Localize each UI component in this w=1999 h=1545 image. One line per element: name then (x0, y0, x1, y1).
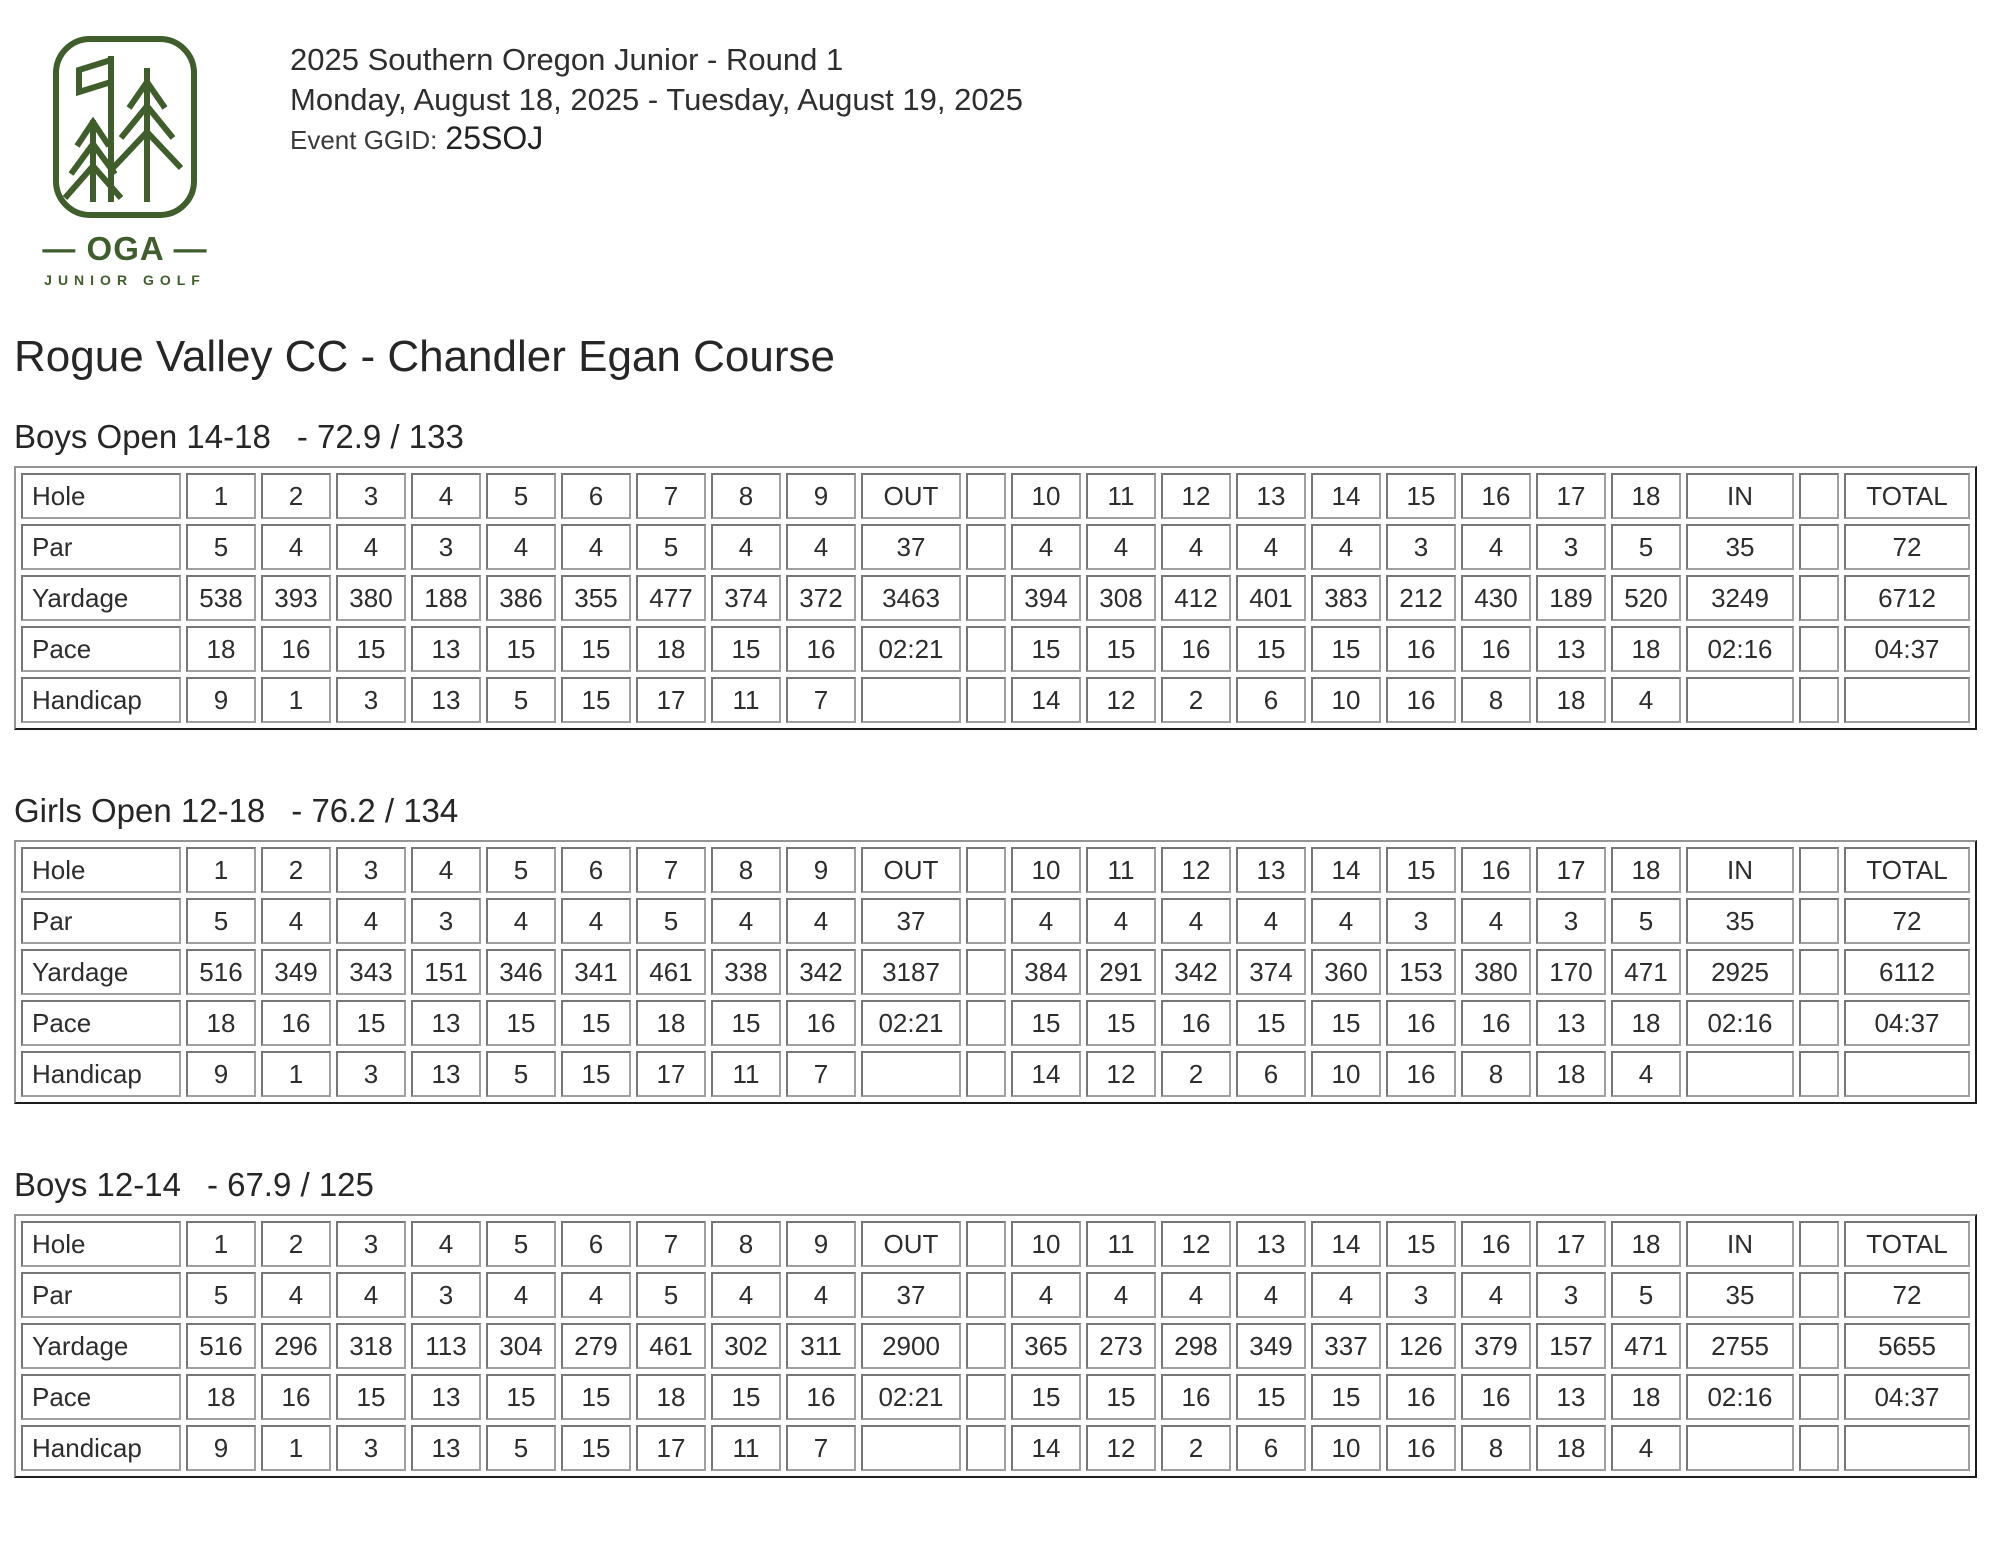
score-cell: 7 (786, 1051, 856, 1097)
score-cell: 7 (636, 473, 706, 519)
score-cell: 5 (186, 1272, 256, 1318)
score-cell: 3187 (861, 949, 961, 995)
score-cell: 16 (1461, 626, 1531, 672)
score-cell: IN (1686, 473, 1794, 519)
spacer-cell (1799, 1000, 1839, 1046)
score-cell: 4 (786, 1272, 856, 1318)
spacer-cell (1799, 524, 1839, 570)
score-cell (1844, 1051, 1970, 1097)
score-cell: 4 (1236, 524, 1306, 570)
score-cell: 18 (1611, 1374, 1681, 1420)
spacer-cell (966, 473, 1006, 519)
score-cell: 308 (1086, 575, 1156, 621)
score-cell: 189 (1536, 575, 1606, 621)
row-label-cell: Hole (21, 473, 181, 519)
spacer-cell (1799, 898, 1839, 944)
score-cell: 37 (861, 898, 961, 944)
score-cell: 349 (1236, 1323, 1306, 1369)
score-cell: 12 (1086, 1051, 1156, 1097)
score-cell: 365 (1011, 1323, 1081, 1369)
score-cell: 6 (1236, 677, 1306, 723)
score-cell: 394 (1011, 575, 1081, 621)
score-cell: 13 (411, 1000, 481, 1046)
tee-rating-slope: - 76.2 / 134 (291, 792, 458, 829)
score-cell: 3 (336, 677, 406, 723)
score-cell: 1 (186, 1221, 256, 1267)
score-cell: 18 (186, 1374, 256, 1420)
score-cell: 2925 (1686, 949, 1794, 995)
score-cell: 4 (1311, 1272, 1381, 1318)
spacer-cell (966, 1425, 1006, 1471)
spacer-cell (1799, 1272, 1839, 1318)
tee-name: Boys 12-14 (14, 1166, 181, 1203)
score-cell: 461 (636, 949, 706, 995)
score-cell: 5655 (1844, 1323, 1970, 1369)
score-cell: 380 (1461, 949, 1531, 995)
score-cell: 4 (261, 1272, 331, 1318)
score-cell: 9 (786, 847, 856, 893)
row-label-cell: Yardage (21, 575, 181, 621)
score-cell: 15 (336, 1000, 406, 1046)
score-cell: 520 (1611, 575, 1681, 621)
score-cell: 3 (1386, 1272, 1456, 1318)
score-cell: 318 (336, 1323, 406, 1369)
score-cell: 374 (711, 575, 781, 621)
spacer-cell (966, 524, 1006, 570)
score-cell: 4 (411, 1221, 481, 1267)
spacer-cell (966, 1374, 1006, 1420)
score-cell: 15 (711, 626, 781, 672)
score-cell: 7 (786, 1425, 856, 1471)
score-cell: 72 (1844, 898, 1970, 944)
score-cell: 3 (1536, 524, 1606, 570)
row-label-cell: Pace (21, 1000, 181, 1046)
score-cell: 18 (636, 1374, 706, 1420)
score-cell: 13 (1236, 473, 1306, 519)
score-cell: 3 (411, 524, 481, 570)
spacer-cell (1799, 1425, 1839, 1471)
spacer-cell (1799, 1221, 1839, 1267)
score-cell: 346 (486, 949, 556, 995)
score-cell: 35 (1686, 898, 1794, 944)
score-cell: 4 (486, 524, 556, 570)
score-cell: 4 (711, 524, 781, 570)
spacer-cell (966, 1323, 1006, 1369)
score-cell: 12 (1161, 473, 1231, 519)
score-cell: 9 (186, 1051, 256, 1097)
score-cell: 4 (486, 1272, 556, 1318)
score-cell: 4 (1311, 898, 1381, 944)
score-cell: 13 (411, 1374, 481, 1420)
score-cell: 16 (1386, 1425, 1456, 1471)
score-cell: 04:37 (1844, 626, 1970, 672)
score-cell: 14 (1011, 1425, 1081, 1471)
score-cell: 3 (336, 1425, 406, 1471)
score-cell: 16 (1386, 626, 1456, 672)
spacer-cell (966, 677, 1006, 723)
oga-logo: — OGA — JUNIOR GOLF (30, 34, 220, 288)
score-cell: 4 (1086, 1272, 1156, 1318)
score-cell: 4 (1161, 524, 1231, 570)
score-cell: 11 (711, 1425, 781, 1471)
score-cell: 04:37 (1844, 1374, 1970, 1420)
score-cell: 72 (1844, 1272, 1970, 1318)
score-cell: 5 (1611, 898, 1681, 944)
score-cell: 6 (1236, 1425, 1306, 1471)
score-cell: 430 (1461, 575, 1531, 621)
spacer-cell (966, 1000, 1006, 1046)
scorecard-row: Handicap913135151711714122610168184 (21, 1425, 1970, 1471)
score-cell: 342 (786, 949, 856, 995)
score-cell: 386 (486, 575, 556, 621)
score-cell: 342 (1161, 949, 1231, 995)
score-cell: 15 (1011, 1374, 1081, 1420)
event-ggid: Event GGID:25SOJ (290, 120, 1023, 158)
score-cell: 16 (786, 1000, 856, 1046)
score-cell: 4 (711, 898, 781, 944)
score-cell: 516 (186, 949, 256, 995)
score-cell: 4 (1611, 1425, 1681, 1471)
score-cell: 15 (336, 626, 406, 672)
score-cell: 5 (486, 1221, 556, 1267)
course-title: Rogue Valley CC - Chandler Egan Course (14, 332, 1985, 382)
score-cell: 471 (1611, 949, 1681, 995)
score-cell: 02:21 (861, 1374, 961, 1420)
score-cell: 5 (636, 1272, 706, 1318)
score-cell: 13 (411, 626, 481, 672)
row-label-cell: Par (21, 898, 181, 944)
scorecard-row: Par544344544374444434353572 (21, 524, 1970, 570)
spacer-cell (1799, 1051, 1839, 1097)
score-cell (861, 677, 961, 723)
score-cell: 13 (1236, 1221, 1306, 1267)
score-cell: 4 (1461, 1272, 1531, 1318)
row-label-cell: Pace (21, 626, 181, 672)
score-cell: 18 (1611, 1000, 1681, 1046)
ggid-value: 25SOJ (445, 120, 543, 156)
score-cell: 7 (636, 847, 706, 893)
score-cell: 1 (186, 473, 256, 519)
score-cell: 02:16 (1686, 1374, 1794, 1420)
score-cell: 18 (186, 626, 256, 672)
score-cell: 16 (1386, 677, 1456, 723)
score-cell: 18 (1611, 1221, 1681, 1267)
score-cell: 3249 (1686, 575, 1794, 621)
tee-name: Boys Open 14-18 (14, 418, 271, 455)
score-cell: 5 (1611, 1272, 1681, 1318)
spacer-cell (1799, 847, 1839, 893)
score-cell: 02:16 (1686, 1000, 1794, 1046)
score-cell: 15 (1011, 626, 1081, 672)
score-cell: 2 (1161, 677, 1231, 723)
score-cell: 2 (261, 847, 331, 893)
scorecard-table: Hole123456789OUT101112131415161718INTOTA… (14, 1214, 1977, 1478)
score-cell: 4 (1611, 1051, 1681, 1097)
score-cell: 279 (561, 1323, 631, 1369)
score-cell: 9 (186, 1425, 256, 1471)
score-cell: 338 (711, 949, 781, 995)
ggid-label: Event GGID: (290, 125, 437, 155)
score-cell: 12 (1161, 847, 1231, 893)
score-cell: 17 (1536, 847, 1606, 893)
score-cell: 5 (486, 1425, 556, 1471)
score-cell: TOTAL (1844, 473, 1970, 519)
score-cell: 15 (711, 1374, 781, 1420)
score-cell: 13 (411, 677, 481, 723)
scorecard-row: Hole123456789OUT101112131415161718INTOTA… (21, 847, 1970, 893)
score-cell: 17 (1536, 473, 1606, 519)
score-cell: 15 (561, 1374, 631, 1420)
score-cell: 18 (1611, 626, 1681, 672)
score-cell: 15 (486, 1374, 556, 1420)
scorecard-table: Hole123456789OUT101112131415161718INTOTA… (14, 466, 1977, 730)
score-cell: 8 (711, 473, 781, 519)
score-cell: 4 (786, 524, 856, 570)
score-cell: 384 (1011, 949, 1081, 995)
score-cell: 13 (411, 1051, 481, 1097)
score-cell: 17 (636, 677, 706, 723)
score-cell: 15 (1236, 1000, 1306, 1046)
score-cell: 16 (261, 1000, 331, 1046)
score-cell: 10 (1011, 473, 1081, 519)
spacer-cell (1799, 626, 1839, 672)
score-cell: 302 (711, 1323, 781, 1369)
score-cell: 12 (1161, 1221, 1231, 1267)
score-cell: 16 (261, 626, 331, 672)
score-cell: 16 (261, 1374, 331, 1420)
score-cell: 15 (1086, 626, 1156, 672)
score-cell: 15 (1236, 1374, 1306, 1420)
score-cell: 1 (261, 1051, 331, 1097)
score-cell: 18 (636, 626, 706, 672)
tee-heading: Boys Open 14-18- 72.9 / 133 (14, 418, 1985, 456)
score-cell: 4 (1161, 1272, 1231, 1318)
score-cell: 9 (786, 1221, 856, 1267)
score-cell: 6 (1236, 1051, 1306, 1097)
score-cell: 3 (1536, 1272, 1606, 1318)
scorecard-row: Yardage516349343151346341461338342318738… (21, 949, 1970, 995)
tee-section: Boys Open 14-18- 72.9 / 133Hole123456789… (14, 418, 1985, 730)
score-cell: 3 (411, 1272, 481, 1318)
spacer-cell (966, 1051, 1006, 1097)
spacer-cell (1799, 473, 1839, 519)
spacer-cell (1799, 1374, 1839, 1420)
score-cell: 7 (636, 1221, 706, 1267)
score-cell: 360 (1311, 949, 1381, 995)
event-dates: Monday, August 18, 2025 - Tuesday, Augus… (290, 80, 1023, 120)
score-cell: 4 (411, 473, 481, 519)
spacer-cell (966, 1221, 1006, 1267)
score-cell: 5 (486, 473, 556, 519)
score-cell: 16 (1461, 1374, 1531, 1420)
score-cell: 12 (1086, 1425, 1156, 1471)
score-cell: 343 (336, 949, 406, 995)
score-cell: 37 (861, 1272, 961, 1318)
score-cell: 4 (1086, 898, 1156, 944)
score-cell: 14 (1311, 847, 1381, 893)
scorecard-row: Yardage516296318113304279461302311290036… (21, 1323, 1970, 1369)
score-cell: 35 (1686, 524, 1794, 570)
score-cell: 349 (261, 949, 331, 995)
score-cell: 4 (261, 524, 331, 570)
score-cell: 18 (1536, 677, 1606, 723)
score-cell: 4 (261, 898, 331, 944)
score-cell (1844, 677, 1970, 723)
score-cell: 9 (786, 473, 856, 519)
score-cell: 113 (411, 1323, 481, 1369)
score-cell: 412 (1161, 575, 1231, 621)
score-cell: 4 (336, 1272, 406, 1318)
score-cell: 15 (1386, 473, 1456, 519)
score-cell: 4 (1611, 677, 1681, 723)
score-cell: 8 (1461, 1425, 1531, 1471)
score-cell: OUT (861, 1221, 961, 1267)
score-cell: 16 (1386, 1000, 1456, 1046)
score-cell: 3 (1536, 898, 1606, 944)
score-cell: 477 (636, 575, 706, 621)
score-cell: 18 (1611, 847, 1681, 893)
score-cell: 5 (486, 847, 556, 893)
score-cell: 16 (1386, 1374, 1456, 1420)
score-cell: 337 (1311, 1323, 1381, 1369)
score-cell: 15 (711, 1000, 781, 1046)
score-cell: 2 (1161, 1051, 1231, 1097)
score-cell: 2900 (861, 1323, 961, 1369)
score-cell: 13 (1536, 1374, 1606, 1420)
row-label-cell: Handicap (21, 1051, 181, 1097)
score-cell: 188 (411, 575, 481, 621)
score-cell: 15 (336, 1374, 406, 1420)
score-cell: OUT (861, 473, 961, 519)
score-cell: 3 (336, 473, 406, 519)
score-cell: 35 (1686, 1272, 1794, 1318)
row-label-cell: Pace (21, 1374, 181, 1420)
score-cell: 4 (1461, 898, 1531, 944)
score-cell: 2 (1161, 1425, 1231, 1471)
score-cell: 18 (1611, 473, 1681, 519)
score-cell: 6 (561, 1221, 631, 1267)
score-cell: 355 (561, 575, 631, 621)
score-cell: 13 (1236, 847, 1306, 893)
scorecard-row: Hole123456789OUT101112131415161718INTOTA… (21, 1221, 1970, 1267)
score-cell: 16 (1161, 1374, 1231, 1420)
score-cell: 291 (1086, 949, 1156, 995)
score-cell (1844, 1425, 1970, 1471)
score-cell: 16 (1161, 626, 1231, 672)
row-label-cell: Par (21, 1272, 181, 1318)
score-cell: 12 (1086, 677, 1156, 723)
score-cell: 304 (486, 1323, 556, 1369)
score-cell: 15 (1311, 1000, 1381, 1046)
scorecard-row: Hole123456789OUT101112131415161718INTOTA… (21, 473, 1970, 519)
score-cell: 15 (486, 626, 556, 672)
spacer-cell (966, 847, 1006, 893)
score-cell: 11 (1086, 847, 1156, 893)
score-cell: 4 (1011, 898, 1081, 944)
score-cell: 16 (786, 1374, 856, 1420)
spacer-cell (966, 949, 1006, 995)
tee-section: Girls Open 12-18- 76.2 / 134Hole12345678… (14, 792, 1985, 1104)
score-cell: 18 (186, 1000, 256, 1046)
score-cell: 15 (1386, 1221, 1456, 1267)
score-cell: 298 (1161, 1323, 1231, 1369)
score-cell: 15 (561, 1000, 631, 1046)
score-cell: 16 (1461, 1221, 1531, 1267)
score-cell: 151 (411, 949, 481, 995)
score-cell: 13 (411, 1425, 481, 1471)
score-cell: 16 (1461, 1000, 1531, 1046)
scorecard-row: Pace18161513151518151602:211515161515161… (21, 1374, 1970, 1420)
score-cell: 10 (1311, 1425, 1381, 1471)
event-header-text: 2025 Southern Oregon Junior - Round 1 Mo… (290, 34, 1023, 158)
score-cell: 13 (1536, 1000, 1606, 1046)
score-cell: 153 (1386, 949, 1456, 995)
score-cell: 8 (1461, 677, 1531, 723)
score-cell: 16 (1461, 847, 1531, 893)
score-cell: 4 (1311, 524, 1381, 570)
oga-pines-flag-icon (49, 34, 201, 222)
score-cell: 10 (1011, 1221, 1081, 1267)
score-cell: 11 (711, 677, 781, 723)
spacer-cell (966, 575, 1006, 621)
tee-heading: Boys 12-14- 67.9 / 125 (14, 1166, 1985, 1204)
score-cell: 72 (1844, 524, 1970, 570)
score-cell: 4 (1011, 524, 1081, 570)
score-cell: 17 (1536, 1221, 1606, 1267)
score-cell (861, 1051, 961, 1097)
score-cell: 14 (1011, 1051, 1081, 1097)
scorecard-row: Yardage538393380188386355477374372346339… (21, 575, 1970, 621)
score-cell: 2755 (1686, 1323, 1794, 1369)
score-cell: 372 (786, 575, 856, 621)
score-cell: 15 (1311, 626, 1381, 672)
score-cell: IN (1686, 847, 1794, 893)
score-cell: 4 (486, 898, 556, 944)
score-cell: 8 (1461, 1051, 1531, 1097)
row-label-cell: Yardage (21, 949, 181, 995)
score-cell: 3 (336, 1051, 406, 1097)
score-cell: 5 (186, 898, 256, 944)
tee-heading: Girls Open 12-18- 76.2 / 134 (14, 792, 1985, 830)
score-cell: 6 (561, 473, 631, 519)
score-cell: 311 (786, 1323, 856, 1369)
score-cell: 1 (261, 1425, 331, 1471)
score-cell: 4 (561, 1272, 631, 1318)
score-cell: 15 (561, 677, 631, 723)
score-cell: 16 (786, 626, 856, 672)
score-cell: 4 (336, 898, 406, 944)
score-cell: IN (1686, 1221, 1794, 1267)
score-cell: 341 (561, 949, 631, 995)
score-cell: 16 (1386, 1051, 1456, 1097)
logo-org-text: — OGA — (42, 230, 207, 268)
score-cell: 11 (1086, 1221, 1156, 1267)
score-cell: 15 (1386, 847, 1456, 893)
scorecard-row: Pace18161513151518151602:211515161515161… (21, 626, 1970, 672)
spacer-cell (1799, 575, 1839, 621)
score-cell: TOTAL (1844, 1221, 1970, 1267)
score-cell: 3 (336, 1221, 406, 1267)
score-cell: 273 (1086, 1323, 1156, 1369)
score-cell: 383 (1311, 575, 1381, 621)
tee-sections: Boys Open 14-18- 72.9 / 133Hole123456789… (14, 418, 1985, 1478)
scorecard-row: Handicap913135151711714122610168184 (21, 677, 1970, 723)
score-cell: 6712 (1844, 575, 1970, 621)
score-cell: 18 (636, 1000, 706, 1046)
score-cell: 14 (1011, 677, 1081, 723)
tee-rating-slope: - 67.9 / 125 (207, 1166, 374, 1203)
event-title: 2025 Southern Oregon Junior - Round 1 (290, 40, 1023, 80)
